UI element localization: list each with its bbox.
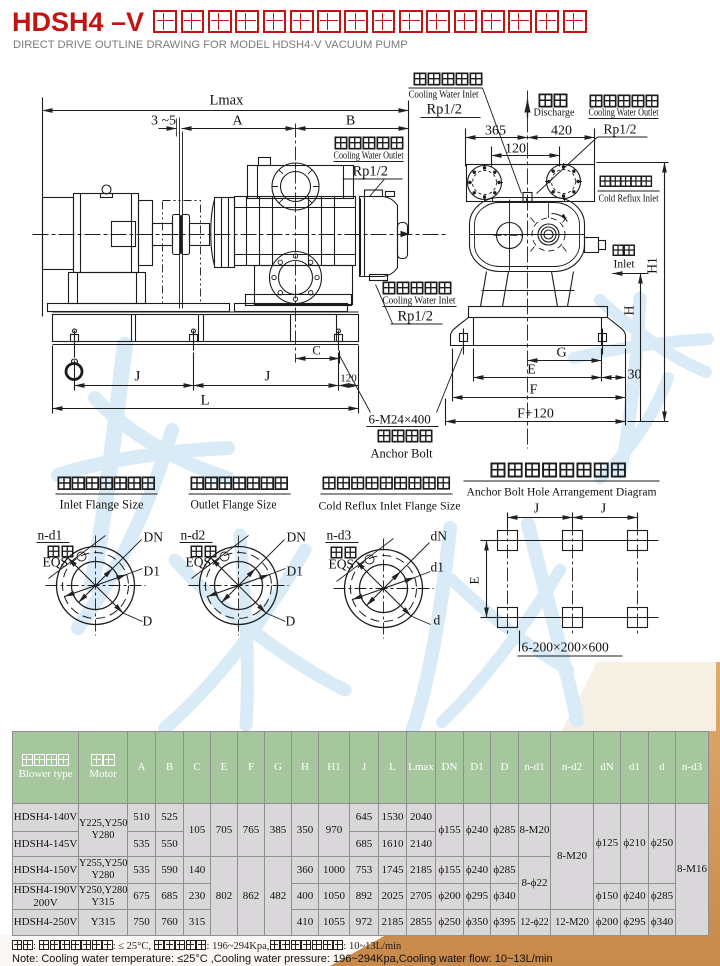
svg-text:L: L <box>201 393 210 409</box>
svg-text:Rp1/2: Rp1/2 <box>427 102 462 118</box>
svg-text:Cooling Water Outlet: Cooling Water Outlet <box>589 108 659 119</box>
svg-text:Rp1/2: Rp1/2 <box>398 309 433 325</box>
svg-text:Cold Reflux Inlet Flange Size: Cold Reflux Inlet Flange Size <box>319 499 461 513</box>
svg-text:Anchor Bolt: Anchor Bolt <box>371 447 434 461</box>
svg-text:3 ~5: 3 ~5 <box>151 114 176 129</box>
svg-text:H1: H1 <box>645 257 660 274</box>
svg-text:E: E <box>467 576 482 584</box>
svg-text:n-d3: n-d3 <box>327 528 352 543</box>
svg-text:C: C <box>312 344 320 358</box>
svg-text:Rp1/2: Rp1/2 <box>604 122 637 137</box>
svg-text:F+120: F+120 <box>517 407 554 422</box>
svg-text:G: G <box>556 346 566 361</box>
svg-text:DN: DN <box>144 530 164 545</box>
svg-text:30: 30 <box>628 368 642 383</box>
svg-text:Cooling Water Inlet: Cooling Water Inlet <box>383 296 456 307</box>
svg-text:d: d <box>434 613 441 628</box>
svg-text:A: A <box>232 114 243 129</box>
svg-text:J: J <box>265 369 271 385</box>
svg-text:6-200×200×600: 6-200×200×600 <box>522 640 609 655</box>
svg-text:H: H <box>622 305 637 315</box>
svg-text:D1: D1 <box>144 564 161 579</box>
svg-text:D: D <box>143 614 153 629</box>
svg-text:365: 365 <box>485 124 506 139</box>
svg-text:Cooling Water Inlet: Cooling Water Inlet <box>409 90 479 101</box>
svg-text:Inlet: Inlet <box>614 259 636 271</box>
svg-text:B: B <box>346 114 355 129</box>
svg-text:Rp1/2: Rp1/2 <box>353 164 388 180</box>
svg-text:n-d2: n-d2 <box>181 528 206 543</box>
svg-text:Cold Reflux Inlet: Cold Reflux Inlet <box>599 194 659 205</box>
svg-text:F: F <box>530 383 538 398</box>
svg-text:DN: DN <box>287 530 307 545</box>
svg-text:n-d1: n-d1 <box>38 528 63 543</box>
svg-text:Outlet Flange Size: Outlet Flange Size <box>191 497 277 512</box>
svg-text:Anchor Bolt Hole Arrangement D: Anchor Bolt Hole Arrangement Diagram <box>467 485 658 499</box>
svg-text:Discharge: Discharge <box>534 107 575 119</box>
svg-text:D1: D1 <box>287 564 304 579</box>
svg-text:J: J <box>135 369 141 385</box>
svg-text:6-M24×400: 6-M24×400 <box>369 412 431 427</box>
svg-text:J: J <box>601 502 607 517</box>
svg-text:dN: dN <box>431 529 448 544</box>
svg-text:E: E <box>527 363 536 378</box>
svg-text:Inlet Flange Size: Inlet Flange Size <box>60 497 144 512</box>
svg-text:EQS: EQS <box>329 557 355 572</box>
svg-text:J: J <box>534 502 540 517</box>
svg-text:d1: d1 <box>431 560 445 575</box>
svg-text:420: 420 <box>551 124 572 139</box>
svg-text:Cooling Water Outlet: Cooling Water Outlet <box>334 151 404 162</box>
svg-text:Lmax: Lmax <box>210 93 245 109</box>
svg-text:D: D <box>286 614 296 629</box>
svg-text:120: 120 <box>505 142 526 157</box>
